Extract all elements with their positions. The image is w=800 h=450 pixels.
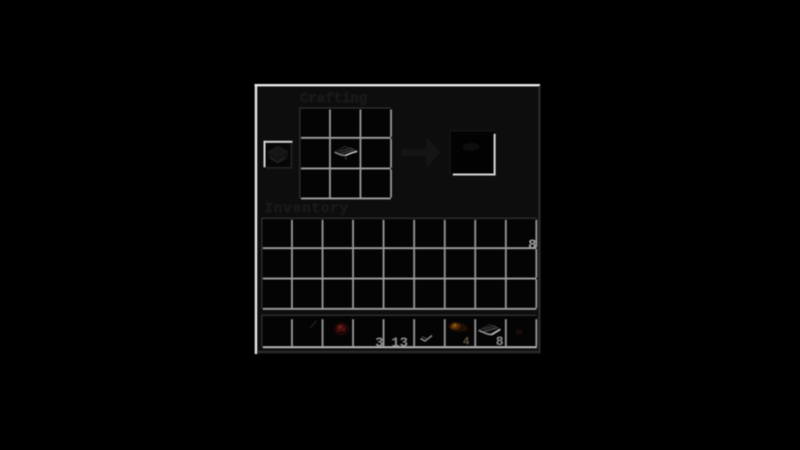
svg-text:8: 8	[496, 334, 504, 349]
svg-text:Crafting: Crafting	[300, 91, 367, 107]
svg-text:3: 3	[375, 335, 383, 351]
svg-text:8: 8	[528, 238, 536, 254]
svg-text:13: 13	[391, 335, 408, 351]
svg-text:4: 4	[463, 337, 470, 349]
svg-text:Inventory: Inventory	[265, 201, 350, 217]
